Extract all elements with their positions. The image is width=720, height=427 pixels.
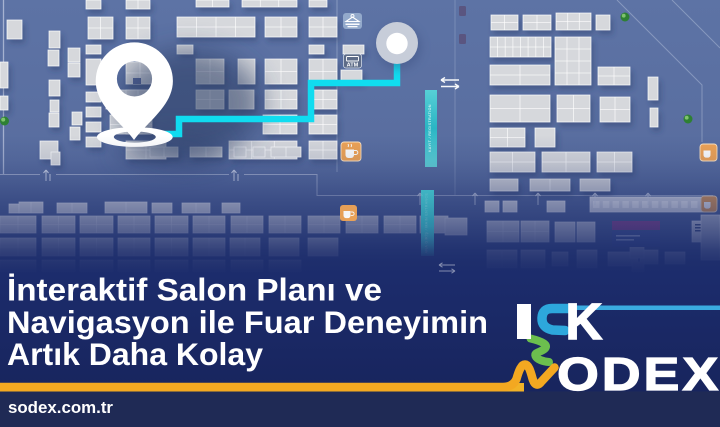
svg-text:Artık Daha Kolay: Artık Daha Kolay [7, 336, 263, 372]
svg-text:ATM: ATM [347, 63, 359, 69]
svg-text:İnteraktif Salon Planı ve: İnteraktif Salon Planı ve [7, 272, 382, 308]
svg-text:K: K [566, 293, 603, 350]
svg-text:ODEX: ODEX [557, 349, 720, 400]
svg-text:sodex.com.tr: sodex.com.tr [8, 398, 113, 417]
svg-text:Navigasyon ile Fuar Deneyimin: Navigasyon ile Fuar Deneyimin [7, 304, 488, 340]
